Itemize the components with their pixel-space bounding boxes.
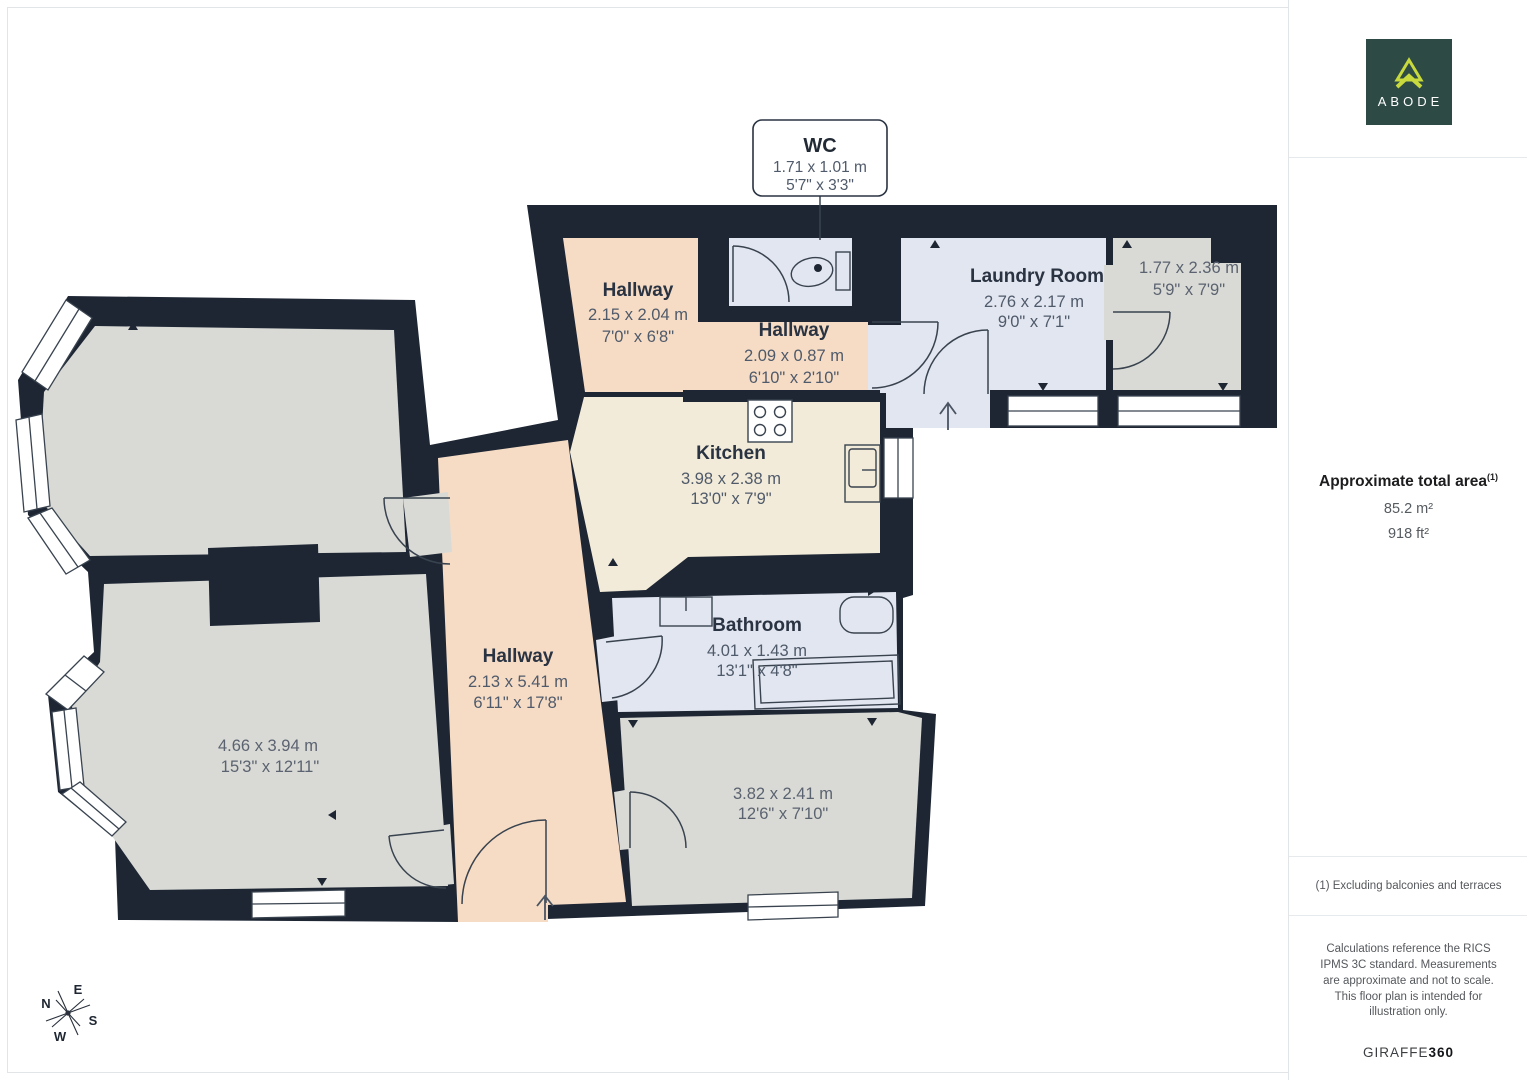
brand-suffix: 360 xyxy=(1428,1045,1454,1060)
area-imperial: 918 ft² xyxy=(1388,526,1429,542)
footnote-section: (1) Excluding balconies and terraces xyxy=(1289,856,1527,915)
giraffe360-brand: GIRAFFE360 xyxy=(1363,1045,1454,1060)
compass-n: N xyxy=(41,996,50,1011)
floorplan-page: WC 1.71 x 1.01 m 5'7" x 3'3" Hallway 2.1… xyxy=(0,0,1527,1080)
disclaimer-text: Calculations reference the RICS IPMS 3C … xyxy=(1315,942,1503,1021)
compass-w: W xyxy=(54,1029,67,1044)
room-bottom-metric: 3.82 x 2.41 m xyxy=(733,785,833,803)
bathroom-metric: 4.01 x 1.43 m xyxy=(707,642,807,660)
abode-logo: ABODE xyxy=(1366,39,1452,125)
area-metric: 85.2 m² xyxy=(1384,501,1433,517)
bathroom-imperial: 13'1" x 4'8" xyxy=(716,662,797,680)
hallway-top-name: Hallway xyxy=(603,280,674,301)
abode-chevron-icon xyxy=(1386,56,1432,90)
brand-name: GIRAFFE xyxy=(1363,1045,1429,1060)
info-sidebar: ABODE Approximate total area(1) 85.2 m² … xyxy=(1288,0,1527,1080)
store-imperial: 5'9" x 7'9" xyxy=(1153,281,1225,299)
chimney-breast xyxy=(208,544,320,626)
logo-section: ABODE xyxy=(1289,0,1527,157)
laundry-metric: 2.76 x 2.17 m xyxy=(984,293,1084,311)
hallway-main-metric: 2.13 x 5.41 m xyxy=(468,673,568,691)
room-left-metric: 4.66 x 3.94 m xyxy=(218,737,318,755)
hallway-strip-imperial: 6'10" x 2'10" xyxy=(749,369,840,387)
logo-wordmark: ABODE xyxy=(1374,94,1444,109)
compass-s: S xyxy=(89,1013,98,1028)
store-metric: 1.77 x 2.36 m xyxy=(1139,259,1239,277)
kitchen-name: Kitchen xyxy=(696,443,766,464)
kitchen-metric: 3.98 x 2.38 m xyxy=(681,470,781,488)
stove-icon xyxy=(748,400,792,442)
area-section: Approximate total area(1) 85.2 m² 918 ft… xyxy=(1289,157,1527,856)
disclaimer-section: Calculations reference the RICS IPMS 3C … xyxy=(1289,915,1527,1080)
room-bottom-imperial: 12'6" x 7'10" xyxy=(738,805,829,823)
wc-dim-imperial: 5'7" x 3'3" xyxy=(786,177,854,194)
wc-label: WC xyxy=(803,135,836,157)
floor-plan: WC 1.71 x 1.01 m 5'7" x 3'3" Hallway 2.1… xyxy=(0,0,1288,1080)
hallway-strip-name: Hallway xyxy=(759,320,830,341)
hallway-main-name: Hallway xyxy=(483,646,554,667)
hallway-main-imperial: 6'11" x 17'8" xyxy=(473,694,562,712)
laundry-name: Laundry Room xyxy=(970,266,1104,287)
laundry-imperial: 9'0" x 7'1" xyxy=(998,313,1070,331)
room-left-imperial: 15'3" x 12'11" xyxy=(221,758,320,776)
room-left-top-floor xyxy=(38,326,406,556)
bathroom-name: Bathroom xyxy=(712,615,802,636)
area-title: Approximate total area(1) xyxy=(1319,472,1498,491)
area-footnote-marker: (1) xyxy=(1487,472,1498,482)
hallway-strip-metric: 2.09 x 0.87 m xyxy=(744,347,844,365)
wc-dim-metric: 1.71 x 1.01 m xyxy=(773,159,867,176)
hallway-top-imperial: 7'0" x 6'8" xyxy=(602,328,674,346)
hallway-top-metric: 2.15 x 2.04 m xyxy=(588,306,688,324)
left-room-door-gap xyxy=(403,492,452,557)
footnote-text: (1) Excluding balconies and terraces xyxy=(1315,880,1501,892)
kitchen-imperial: 13'0" x 7'9" xyxy=(690,490,771,508)
compass-e: E xyxy=(74,982,83,997)
compass-icon: E N S W xyxy=(41,982,97,1044)
floor-plan-svg: WC 1.71 x 1.01 m 5'7" x 3'3" Hallway 2.1… xyxy=(0,0,1288,1080)
area-title-text: Approximate total area xyxy=(1319,474,1487,491)
store-door-gap xyxy=(1104,265,1113,340)
